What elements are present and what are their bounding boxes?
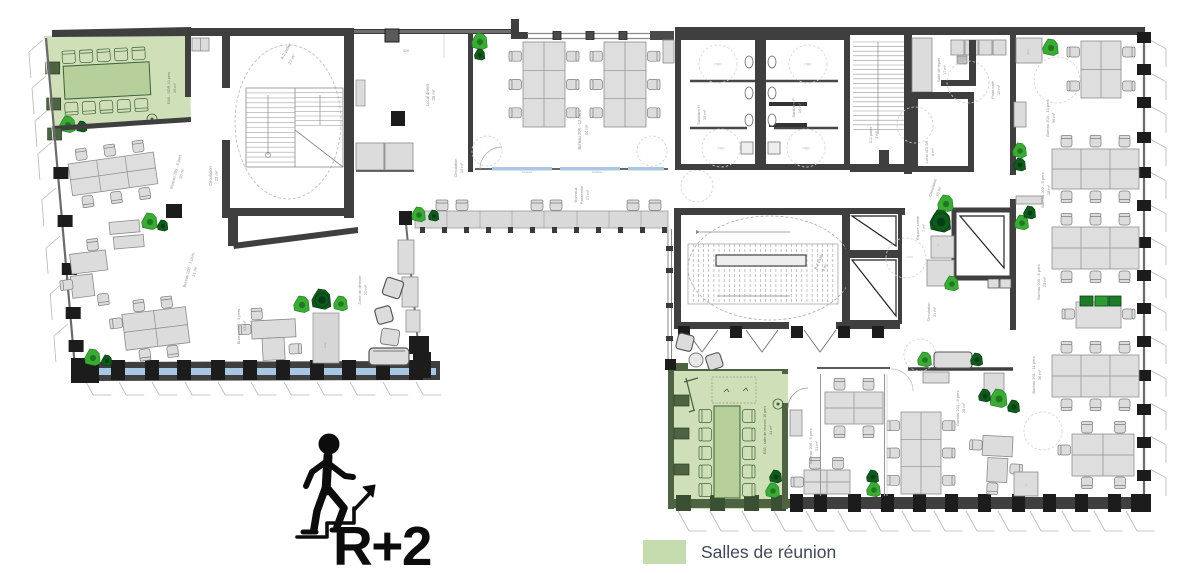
svg-text:Point café: Point café: [990, 80, 995, 99]
svg-text:24 m²: 24 m²: [769, 425, 773, 435]
svg-text:529: 529: [403, 49, 409, 53]
svg-text:26 m²: 26 m²: [431, 89, 436, 100]
svg-text:7 m²: 7 m²: [922, 223, 926, 231]
svg-text:C-2 palier: C-2 palier: [869, 126, 873, 143]
svg-text:31 m²: 31 m²: [932, 306, 937, 317]
svg-text:PMR: PMR: [907, 255, 915, 259]
svg-text:xxxxxxxx: xxxxxxxx: [522, 171, 533, 174]
svg-text:Zone de détente: Zone de détente: [357, 275, 362, 305]
svg-text:36 m²: 36 m²: [1037, 369, 1042, 380]
svg-text:Salle de repos: Salle de repos: [937, 58, 941, 82]
svg-text:arm: arm: [1026, 49, 1030, 54]
svg-text:Passerelle: Passerelle: [579, 185, 584, 204]
svg-text:Bureaux: Bureaux: [573, 188, 578, 203]
svg-text:28 m²: 28 m²: [1042, 276, 1047, 287]
svg-text:Bureau 207 - 3 pers.: Bureau 207 - 3 pers.: [236, 308, 241, 344]
svg-text:zone: zone: [324, 342, 327, 348]
svg-text:13 m²: 13 m²: [242, 320, 247, 331]
svg-text:Bureau 206 - 12 pers: Bureau 206 - 12 pers: [577, 110, 582, 149]
svg-text:8 m²: 8 m²: [931, 147, 935, 155]
svg-text:Local divers: Local divers: [425, 84, 430, 106]
svg-text:10 m²: 10 m²: [996, 84, 1001, 95]
svg-text:22 m²: 22 m²: [214, 170, 219, 181]
svg-text:Circulation: Circulation: [453, 159, 458, 178]
svg-text:21 m²: 21 m²: [814, 440, 819, 451]
svg-text:15 m²: 15 m²: [702, 109, 707, 120]
svg-text:Local VDI SR: Local VDI SR: [925, 140, 929, 163]
svg-text:PMR: PMR: [714, 63, 722, 67]
svg-text:xxxxxxxx: xxxxxxxx: [592, 171, 603, 174]
svg-text:Circulation: Circulation: [208, 165, 213, 185]
svg-text:Bureau 203 - 10 pers: Bureau 203 - 10 pers: [1045, 99, 1050, 137]
svg-text:Salles de réunion: Salles de réunion: [701, 542, 836, 562]
svg-text:R+2: R+2: [333, 515, 431, 568]
svg-text:PMR: PMR: [717, 147, 725, 151]
svg-text:3 m²: 3 m²: [875, 130, 879, 138]
svg-text:Bureau 200 - 8 pers: Bureau 200 - 8 pers: [1036, 264, 1041, 299]
svg-text:20 m²: 20 m²: [363, 284, 368, 295]
svg-text:Bureau 204 - 8 pers: Bureau 204 - 8 pers: [955, 390, 960, 425]
svg-text:PMR: PMR: [804, 63, 812, 67]
svg-text:27 m²: 27 m²: [585, 189, 590, 200]
svg-text:Bureau 202 - 9 pers: Bureau 202 - 9 pers: [1040, 172, 1045, 207]
svg-text:17 m²: 17 m²: [943, 64, 947, 74]
svg-text:16 m²: 16 m²: [797, 102, 802, 113]
svg-text:44 m²: 44 m²: [584, 124, 589, 135]
svg-text:Bureau 205 - 6 pers: Bureau 205 - 6 pers: [808, 428, 813, 463]
svg-text:EA5 - SDR 10 pers: EA5 - SDR 10 pers: [167, 72, 171, 104]
svg-text:Sanitaire H: Sanitaire H: [696, 105, 701, 125]
svg-text:Bureau 201 - 11 pers: Bureau 201 - 11 pers: [1031, 356, 1036, 393]
svg-text:Espace cafète: Espace cafète: [916, 216, 920, 240]
svg-text:EA5 - salle de réunion 10 pers: EA5 - salle de réunion 10 pers: [763, 406, 767, 455]
svg-text:28 m²: 28 m²: [1046, 184, 1051, 195]
svg-text:Circulation: Circulation: [926, 303, 931, 322]
svg-text:10 m²: 10 m²: [459, 162, 464, 173]
svg-text:Sanitaire F: Sanitaire F: [791, 98, 796, 118]
svg-text:PMR: PMR: [802, 147, 810, 151]
svg-text:20 m²: 20 m²: [173, 82, 177, 92]
svg-text:36 m²: 36 m²: [1051, 112, 1056, 123]
svg-text:28 m²: 28 m²: [961, 402, 966, 413]
